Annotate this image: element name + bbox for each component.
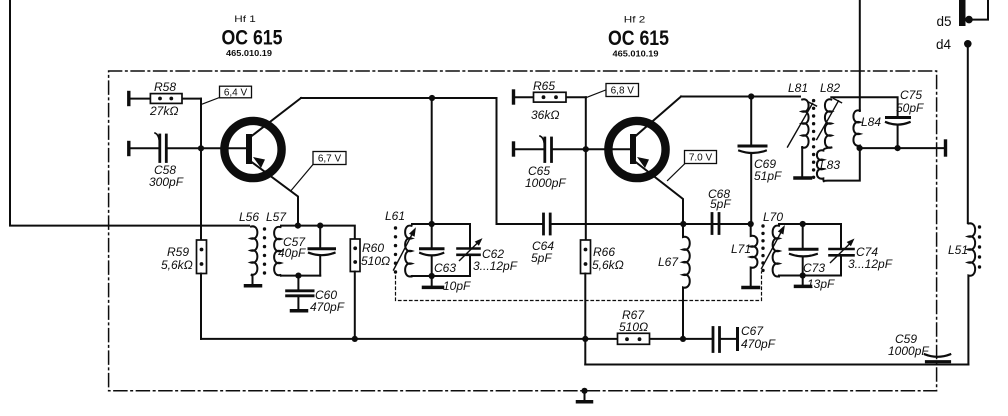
svg-text:1000pF: 1000pF [525, 176, 566, 190]
svg-text:L61: L61 [385, 209, 405, 223]
svg-text:L67: L67 [658, 255, 679, 269]
svg-text:OC 615: OC 615 [222, 26, 283, 49]
svg-text:5,6kΩ: 5,6kΩ [161, 258, 193, 272]
svg-text:3...12pF: 3...12pF [848, 257, 893, 271]
svg-text:L57: L57 [266, 210, 287, 224]
svg-text:510Ω: 510Ω [361, 254, 390, 268]
svg-text:7.0 V: 7.0 V [689, 153, 713, 164]
svg-text:OC 615: OC 615 [608, 27, 669, 50]
svg-text:465.010.19: 465.010.19 [226, 49, 273, 58]
svg-text:Hf 2: Hf 2 [624, 15, 646, 26]
svg-text:6,4 V: 6,4 V [224, 88, 248, 99]
svg-text:300pF: 300pF [149, 175, 184, 189]
svg-text:510Ω: 510Ω [619, 320, 648, 334]
svg-text:40pF: 40pF [278, 246, 306, 260]
svg-text:5pF: 5pF [710, 197, 731, 211]
svg-text:3...12pF: 3...12pF [473, 259, 518, 273]
svg-text:5pF: 5pF [531, 251, 552, 265]
svg-text:10pF: 10pF [443, 279, 471, 293]
svg-text:R59: R59 [167, 245, 189, 259]
svg-text:36kΩ: 36kΩ [531, 108, 559, 122]
svg-text:L81: L81 [788, 81, 808, 95]
svg-text:470pF: 470pF [310, 300, 345, 314]
svg-text:27kΩ: 27kΩ [149, 104, 178, 118]
svg-text:1000pF: 1000pF [888, 344, 929, 358]
svg-text:L84: L84 [861, 115, 881, 129]
svg-text:R58: R58 [154, 80, 176, 94]
svg-text:6,8 V: 6,8 V [611, 86, 635, 97]
svg-text:L56: L56 [239, 210, 259, 224]
svg-text:465.010.19: 465.010.19 [613, 50, 660, 59]
svg-text:51pF: 51pF [754, 169, 782, 183]
svg-text:d4: d4 [936, 37, 952, 52]
svg-text:R60: R60 [362, 241, 384, 255]
svg-text:L70: L70 [763, 210, 783, 224]
svg-text:d5: d5 [937, 14, 952, 29]
svg-text:R66: R66 [593, 245, 615, 259]
svg-text:470pF: 470pF [741, 337, 776, 351]
svg-text:L51: L51 [948, 243, 968, 257]
svg-text:Hf 1: Hf 1 [234, 14, 256, 25]
svg-text:L82: L82 [820, 81, 840, 95]
svg-text:R65: R65 [533, 79, 555, 93]
svg-text:5,6kΩ: 5,6kΩ [592, 258, 624, 272]
svg-text:L83: L83 [820, 158, 840, 172]
svg-text:L71: L71 [731, 242, 751, 256]
svg-text:C75: C75 [900, 88, 922, 102]
svg-text:C67: C67 [741, 324, 764, 338]
svg-text:50pF: 50pF [896, 101, 924, 115]
svg-text:13pF: 13pF [807, 277, 835, 291]
svg-text:C63: C63 [434, 261, 456, 275]
svg-text:C73: C73 [803, 261, 825, 275]
svg-text:6,7 V: 6,7 V [318, 154, 342, 165]
